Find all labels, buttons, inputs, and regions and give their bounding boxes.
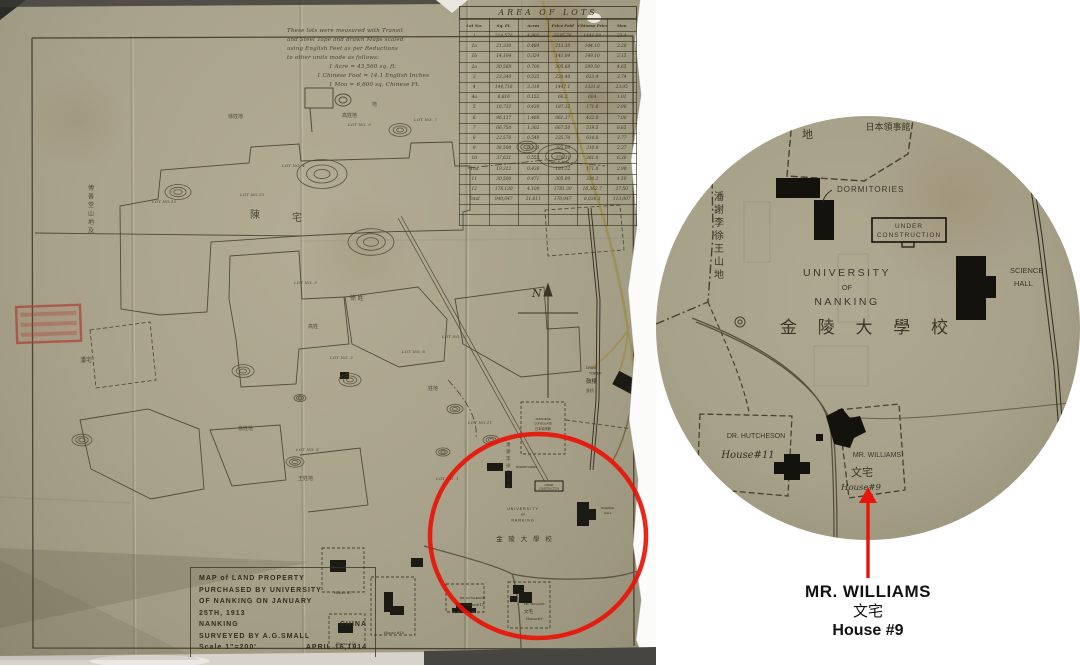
contour-ring — [389, 124, 411, 137]
map-surveyor: SURVEYED BY A.G.SMALL — [199, 631, 367, 643]
university-cjk-map: 金 陵 大 學 校 — [496, 534, 554, 543]
table-cell: 66,750 — [489, 123, 519, 133]
table-cell: 10 — [460, 154, 490, 164]
table-cell — [460, 205, 490, 215]
table-cell: 96,137 — [489, 113, 519, 123]
table-header-cell: Price Paid — [548, 20, 578, 32]
contour-ring — [364, 238, 379, 247]
red-stamp — [16, 305, 81, 343]
table-cell: 9 — [460, 144, 490, 154]
table-cell: 2.90 — [607, 164, 637, 174]
table-cell: 3.74 — [607, 72, 637, 82]
table-cell: 2145.76 — [548, 32, 578, 42]
caption-house: House #9 — [758, 621, 978, 641]
table-cell: 0.436 — [519, 164, 549, 174]
area-of-lots-table: AREA OF LOTS Lot No.Sq. Ft.AcresPrice Pa… — [459, 6, 637, 226]
table-title: AREA OF LOTS — [459, 6, 637, 19]
williams-label: MR. WILLIAMS — [853, 452, 902, 459]
table-cell: 7.00 — [607, 113, 637, 123]
contour-ring — [393, 126, 407, 134]
table-cell: 27.50 — [607, 184, 637, 194]
table-cell: 0.430 — [519, 103, 549, 113]
table-cell: 16,362.7 — [578, 184, 608, 194]
table-row: 766,7501.302667.50519.58.65 — [460, 123, 637, 133]
lot-number-label: LOT NO. 5 — [441, 334, 465, 339]
table-cell: 66.2 — [548, 93, 578, 103]
contour-ring — [236, 367, 250, 375]
contour-ring — [170, 187, 186, 196]
table-cell — [460, 215, 490, 225]
svg-text:House#11: House#11 — [462, 602, 484, 607]
table-cell: 3 — [460, 72, 490, 82]
contour-ring — [450, 406, 460, 412]
table-cell: 667.50 — [548, 123, 578, 133]
lot-number-label: LOT NO.10 — [151, 199, 177, 204]
map-cjk-label: 徐 姓 — [350, 294, 364, 302]
lot-number-label: LOT NO. 3 — [293, 280, 317, 285]
table-cell: 113,007 — [607, 195, 637, 205]
pencil-outlines — [744, 202, 868, 386]
contour-ring — [339, 374, 361, 387]
table-cell: 10a — [460, 164, 490, 174]
table-cell: 214,576 — [489, 32, 519, 42]
science-label-2: HALL — [1014, 279, 1033, 288]
table-cell: 305.00 — [548, 174, 578, 184]
table-cell: 23,340 — [489, 72, 519, 82]
table-cell: 0.333 — [519, 144, 549, 154]
svg-text:CONSTRUCTION: CONSTRUCTION — [877, 232, 941, 239]
table-row: 1a21,3300.484213.30144.103.28 — [460, 42, 637, 52]
map-cjk-label: 謝 — [506, 448, 511, 455]
table-header-cell: Lot No. — [460, 20, 490, 32]
table-cell: 38,500 — [489, 144, 519, 154]
under-construction-label: UNDER — [895, 223, 923, 230]
contour-ring — [240, 369, 247, 373]
table-cell: 0.152 — [519, 93, 549, 103]
hill-area-cjk-char: 王 — [714, 244, 724, 255]
table-cell: 4a — [460, 93, 490, 103]
hutcheson-house-label: House#11 — [720, 450, 774, 461]
table-cell: 4.100 — [519, 184, 549, 194]
map-cjk-label: 潘宅 — [80, 356, 92, 364]
table-cell — [519, 215, 549, 225]
table-row: 1b14,1040.324141.04149.102.15 — [460, 52, 637, 62]
map-cjk-label: 善 — [88, 193, 94, 201]
hill-area-cjk-char: 山 — [714, 256, 724, 268]
table-row: 1037,6310.552376.31361.06.30 — [460, 154, 637, 164]
map-place: NANKING — [199, 619, 239, 631]
svg-text:House#9: House#9 — [525, 617, 543, 621]
table-cell: 21.611 — [519, 195, 549, 205]
svg-text:CONSTRUCTION: CONSTRUCTION — [539, 488, 559, 491]
lot-number-label: LOT NO. 2 — [329, 355, 353, 360]
map-cjk-label: 高姓地 — [342, 112, 357, 119]
table-cell: 37,631 — [489, 154, 519, 164]
table-cell: 4.50 — [607, 174, 637, 184]
table-cell: 2a — [460, 62, 490, 72]
table-cell: 2.15 — [607, 52, 637, 62]
table-cell: 178,130 — [489, 184, 519, 194]
williams-cjk-label: 文宅 — [851, 465, 873, 479]
table-header-cell: Acres — [519, 20, 549, 32]
survey-notes: These lots were measured with Transit an… — [287, 27, 467, 90]
university-label-1: UNIVERSITY — [803, 267, 891, 279]
table-cell: 1a — [460, 42, 490, 52]
table-cell — [607, 205, 637, 215]
compass-rose: N — [518, 284, 578, 398]
table-cell: 171.6 — [578, 103, 608, 113]
inset-drawing: UNDER CONSTRUCTION 地 日本領事館 DORMITORIES U… — [656, 116, 1080, 540]
table-cell: 6.30 — [607, 154, 637, 164]
map-cjk-label: 宅 — [292, 211, 302, 224]
svg-text:文宅: 文宅 — [524, 608, 533, 615]
table-cell: 613.4 — [578, 72, 608, 82]
svg-text:CONSULATE: CONSULATE — [534, 422, 552, 426]
table-cell: Total — [460, 195, 490, 205]
magnified-inset: UNDER CONSTRUCTION 地 日本領事館 DORMITORIES U… — [656, 116, 1080, 540]
table-cell — [489, 215, 519, 225]
table-cell: 144,716 — [489, 82, 519, 92]
table-cell — [578, 215, 608, 225]
contour-ring — [343, 376, 357, 384]
table-cell: 8.65 — [607, 123, 637, 133]
table-cell: 1781.30 — [548, 184, 578, 194]
map-cjk-label: 地 — [88, 218, 94, 226]
table-cell: 171.0 — [578, 164, 608, 174]
table-cell: 614.8 — [578, 133, 608, 143]
table-row: 938,5000.333385.00310.02.37 — [460, 144, 637, 154]
hill-area-cjk-char: 地 — [714, 268, 724, 281]
consulate-label-map: JAPANESE — [535, 417, 550, 421]
lot-number-label: LOT NO. 9 — [347, 122, 371, 127]
table-row: Total940,04721.611170,0478,036.3113,007 — [460, 195, 637, 205]
map-cjk-label: 地 — [372, 101, 377, 108]
table-cell: 3.28 — [607, 42, 637, 52]
map-cjk-label: 堂 — [88, 201, 94, 209]
caption-name: MR. WILLIAMS — [758, 581, 978, 602]
contour-ring — [174, 190, 182, 195]
table-cell — [607, 215, 637, 225]
lot-number-labels: LOT NO.10LOT NO.13LOT NO. 4LOT NO. 9LOT … — [151, 117, 492, 481]
table-header-cell: Chinese Price — [578, 20, 608, 32]
table-cell: 2.37 — [607, 144, 637, 154]
university-label-3: NANKING — [814, 296, 879, 308]
contour-ring — [439, 450, 448, 455]
table-cell: 1331.8 — [578, 82, 608, 92]
house10-label: House #10 — [383, 631, 405, 635]
table-cell: 3.77 — [607, 133, 637, 143]
compass-n-label: N — [531, 287, 542, 300]
map-cjk-label: 李 — [506, 455, 511, 461]
table-cell: 1447.1 — [548, 82, 578, 92]
table-cell: 5 — [460, 103, 490, 113]
map-cjk-label: 徐姓地 — [238, 425, 253, 432]
dormitories-label: DORMITORIES — [837, 185, 904, 194]
hill-area-cjk-char: 徐 — [714, 229, 724, 242]
university-label-2: OF — [842, 283, 853, 292]
lot-number-label: LOT NO.11 — [467, 420, 492, 425]
table-cell: 187.32 — [548, 103, 578, 113]
table-cell: 1b — [460, 52, 490, 62]
table-cell: 0.324 — [519, 52, 549, 62]
lot-number-label: LOT NO. 4 — [281, 163, 305, 168]
drum-tower-label: DRUM — [586, 366, 596, 370]
map-cjk-label: 陳 — [250, 209, 260, 221]
map-scale: Scale 1"=200' — [199, 642, 257, 654]
map-cjk-label: 潘 — [506, 441, 511, 448]
table-cell: 310.0 — [578, 144, 608, 154]
table-cell: 376.31 — [548, 154, 578, 164]
table-cell: 1441.00 — [578, 32, 608, 42]
consulate-cjk-inset: 日本領事館 — [865, 121, 910, 132]
table-cell: 233.40 — [548, 72, 578, 82]
table-cell: 2.96 — [607, 103, 637, 113]
contour-ring — [307, 165, 338, 183]
hill-area-cjk-char: 謝 — [714, 203, 724, 216]
map-cjk-label: 高姓 — [308, 323, 318, 330]
table-cell: 141.04 — [548, 52, 578, 62]
table-row: 4a6,6160.15266.26041.01 — [460, 93, 637, 103]
map-cjk-label: 徐 — [506, 462, 511, 469]
svg-text:TOWER: TOWER — [589, 372, 602, 376]
table-cell: 519.5 — [578, 123, 608, 133]
table-row: 323,3400.535233.40613.43.74 — [460, 72, 637, 82]
table-cell — [548, 205, 578, 215]
table-row: 4144,7163.3181447.11331.823.05 — [460, 82, 637, 92]
map-cjk-label: 王姓地 — [298, 475, 313, 482]
contour-ring — [452, 408, 457, 411]
table-cell: 1.460 — [519, 113, 549, 123]
map-cjk-label: 姓地 — [428, 385, 438, 392]
table-cell: 170,047 — [548, 195, 578, 205]
table-cell: 0.484 — [519, 42, 549, 52]
svg-text:日本領事館: 日本領事館 — [535, 426, 551, 431]
university-label-map: UNIVERSITY — [507, 507, 539, 511]
map-cjk-label: 山 — [506, 476, 511, 483]
inset-caption: MR. WILLIAMS 文宅 House #9 — [758, 581, 978, 641]
contour-ring — [76, 436, 88, 443]
survey-mark — [735, 317, 745, 327]
table-row: 2a30,5680.700305.68209.504.65 — [460, 62, 637, 72]
hill-area-cjk-vertical: 潘謝李徐王山地 — [714, 191, 724, 281]
contour-ring — [347, 378, 354, 382]
red-arrow — [852, 484, 884, 584]
table-row: 12178,1304.1001781.3016,362.727.50 — [460, 184, 637, 194]
table-row: 518,7320.430187.32171.62.96 — [460, 103, 637, 113]
table-cell: 209.50 — [578, 62, 608, 72]
lot-number-label: LOT NO. 7 — [413, 117, 437, 122]
map-cjk-label: 山 — [88, 210, 94, 218]
science-hall-label-map: SCIENCE — [601, 506, 614, 510]
map-cjk-label: 王 — [506, 470, 511, 475]
table-cell — [489, 205, 519, 215]
table-cell — [548, 215, 578, 225]
table-row: 1214,5764.9052145.761441.0023.4 — [460, 32, 637, 42]
table-cell: 4 — [460, 82, 490, 92]
screenshot-stage: DORMITORIES UNDER CONSTRUCTION UNIVERSIT… — [0, 0, 1080, 665]
table-cell: 6 — [460, 113, 490, 123]
historic-map-photo: DORMITORIES UNDER CONSTRUCTION UNIVERSIT… — [0, 0, 656, 665]
under-construction-label-map: UNDER — [545, 484, 554, 487]
svg-text:HALL: HALL — [604, 511, 612, 515]
hutcheson-label: DR. HUTCHESON — [727, 433, 785, 440]
table-cell: 0.700 — [519, 62, 549, 72]
table-cell: 3.318 — [519, 82, 549, 92]
contour-ring — [72, 434, 92, 446]
table-cell: 361.0 — [578, 154, 608, 164]
table-cell: 149.10 — [578, 52, 608, 62]
table-cell: 940,047 — [489, 195, 519, 205]
lot-number-label: LOT NO. 8 — [401, 349, 425, 354]
table-row: 1130,5000.471305.00330.24.50 — [460, 174, 637, 184]
map-cjk-label: 鉄桥 — [586, 387, 594, 393]
table-header-row: Lot No.Sq. Ft.AcresPrice PaidChinese Pri… — [460, 20, 637, 32]
table-row: 823,5700.540235.70614.83.77 — [460, 133, 637, 143]
hill-area-cjk-char: 李 — [714, 216, 724, 229]
table-cell: 6,616 — [489, 93, 519, 103]
drum-tower-cjk: 鼓樓 — [586, 377, 598, 385]
table-cell: 4.65 — [607, 62, 637, 72]
table-cell: 0.540 — [519, 133, 549, 143]
map-date: APRIL 16,1914 — [306, 642, 367, 654]
table-cell: 213.30 — [548, 42, 578, 52]
table-cell: 1.302 — [519, 123, 549, 133]
map-cjk-label: 地 — [506, 483, 511, 489]
table-header-cell: Mou — [607, 20, 637, 32]
di-cjk-label: 地 — [802, 128, 813, 141]
caption-cjk: 文宅 — [758, 602, 978, 621]
contour-ring — [441, 451, 445, 454]
contour-ring — [314, 169, 330, 178]
table-cell: 14,104 — [489, 52, 519, 62]
table-header-cell: Sq. Ft. — [489, 20, 519, 32]
table-cell: 23,570 — [489, 133, 519, 143]
table-cell: 0.471 — [519, 174, 549, 184]
table-row: 10a19,3120.436193.12171.02.90 — [460, 164, 637, 174]
williams-label-map: MR. WILLIAMS — [524, 602, 545, 606]
map-title-line: MAP of LAND PROPERTY — [199, 573, 367, 585]
map-cjk-label: 徐姓地 — [228, 113, 243, 120]
table-cell: 11 — [460, 174, 490, 184]
map-cjk-label: 及 — [88, 228, 94, 235]
table-cell: 305.68 — [548, 62, 578, 72]
hutcheson-label-map: DR. HUTCHESON — [460, 596, 485, 600]
table-cell: 0.552 — [519, 154, 549, 164]
table-cell: 330.2 — [578, 174, 608, 184]
lot-number-label: LOT NO.13 — [239, 192, 265, 197]
contour-ring — [357, 234, 386, 251]
table-cell: 21,330 — [489, 42, 519, 52]
table-cell: 7 — [460, 123, 490, 133]
table-cell: 30,568 — [489, 62, 519, 72]
svg-text:NANKING: NANKING — [511, 519, 534, 523]
contour-ring — [292, 460, 298, 463]
table-cell: 961.37 — [548, 113, 578, 123]
contour-ring — [397, 128, 404, 132]
table-cell — [519, 205, 549, 215]
table-cell: 385.00 — [548, 144, 578, 154]
lot-number-label: LOT NO. 6 — [295, 447, 319, 452]
table-cell: 4.905 — [519, 32, 549, 42]
table-cell: 193.12 — [548, 164, 578, 174]
table-cell: 23.05 — [607, 82, 637, 92]
table-cell: 23.4 — [607, 32, 637, 42]
table-cell: 1.01 — [607, 93, 637, 103]
table-cell: 12 — [460, 184, 490, 194]
table-cell: 0.535 — [519, 72, 549, 82]
table-cell: 235.70 — [548, 133, 578, 143]
university-cjk-label: 金 陵 大 學 校 — [780, 318, 956, 337]
table-cell: 604 — [578, 93, 608, 103]
table-cell: 1 — [460, 32, 490, 42]
table-cell — [578, 205, 608, 215]
table-row — [460, 205, 637, 215]
contour-ring — [165, 185, 191, 200]
contour-ring — [286, 457, 304, 467]
table-row — [460, 215, 637, 225]
svg-text:OF: OF — [521, 513, 525, 517]
contour-ring — [232, 365, 254, 378]
table-cell: 144.10 — [578, 42, 608, 52]
table-cell: 8 — [460, 133, 490, 143]
science-label-1: SCIENCE — [1010, 266, 1043, 275]
dormitories-label-map: DORMITORIES — [516, 465, 537, 469]
contour-ring — [289, 459, 300, 465]
map-cjk-label: 傅 — [88, 184, 94, 192]
under-construction-box: UNDER CONSTRUCTION — [872, 218, 946, 247]
table-cell: 30,500 — [489, 174, 519, 184]
table-cell: 432.0 — [578, 113, 608, 123]
hill-area-cjk-char: 潘 — [714, 191, 724, 203]
table-cell: 18,732 — [489, 103, 519, 113]
inset-labels: 地 日本領事館 DORMITORIES UNIVERSITY OF NANKIN… — [720, 121, 1043, 493]
table-cell: 19,312 — [489, 164, 519, 174]
table-row: 696,1371.460961.37432.07.00 — [460, 113, 637, 123]
table-cell: 8,036.3 — [578, 195, 608, 205]
map-title-block: MAP of LAND PROPERTY PURCHASED BY UNIVER… — [190, 567, 376, 657]
